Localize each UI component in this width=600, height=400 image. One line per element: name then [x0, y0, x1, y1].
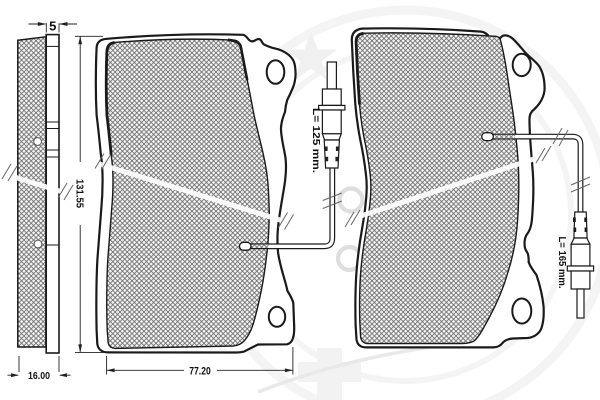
svg-text:L= 125 mm.: L= 125 mm.	[310, 108, 321, 173]
svg-text:5: 5	[49, 19, 56, 34]
svg-text:16.00: 16.00	[28, 371, 50, 382]
svg-text:131.55: 131.55	[74, 179, 85, 208]
svg-text:L= 165 mm.: L= 165 mm.	[556, 237, 567, 289]
svg-text:77.20: 77.20	[189, 366, 211, 378]
